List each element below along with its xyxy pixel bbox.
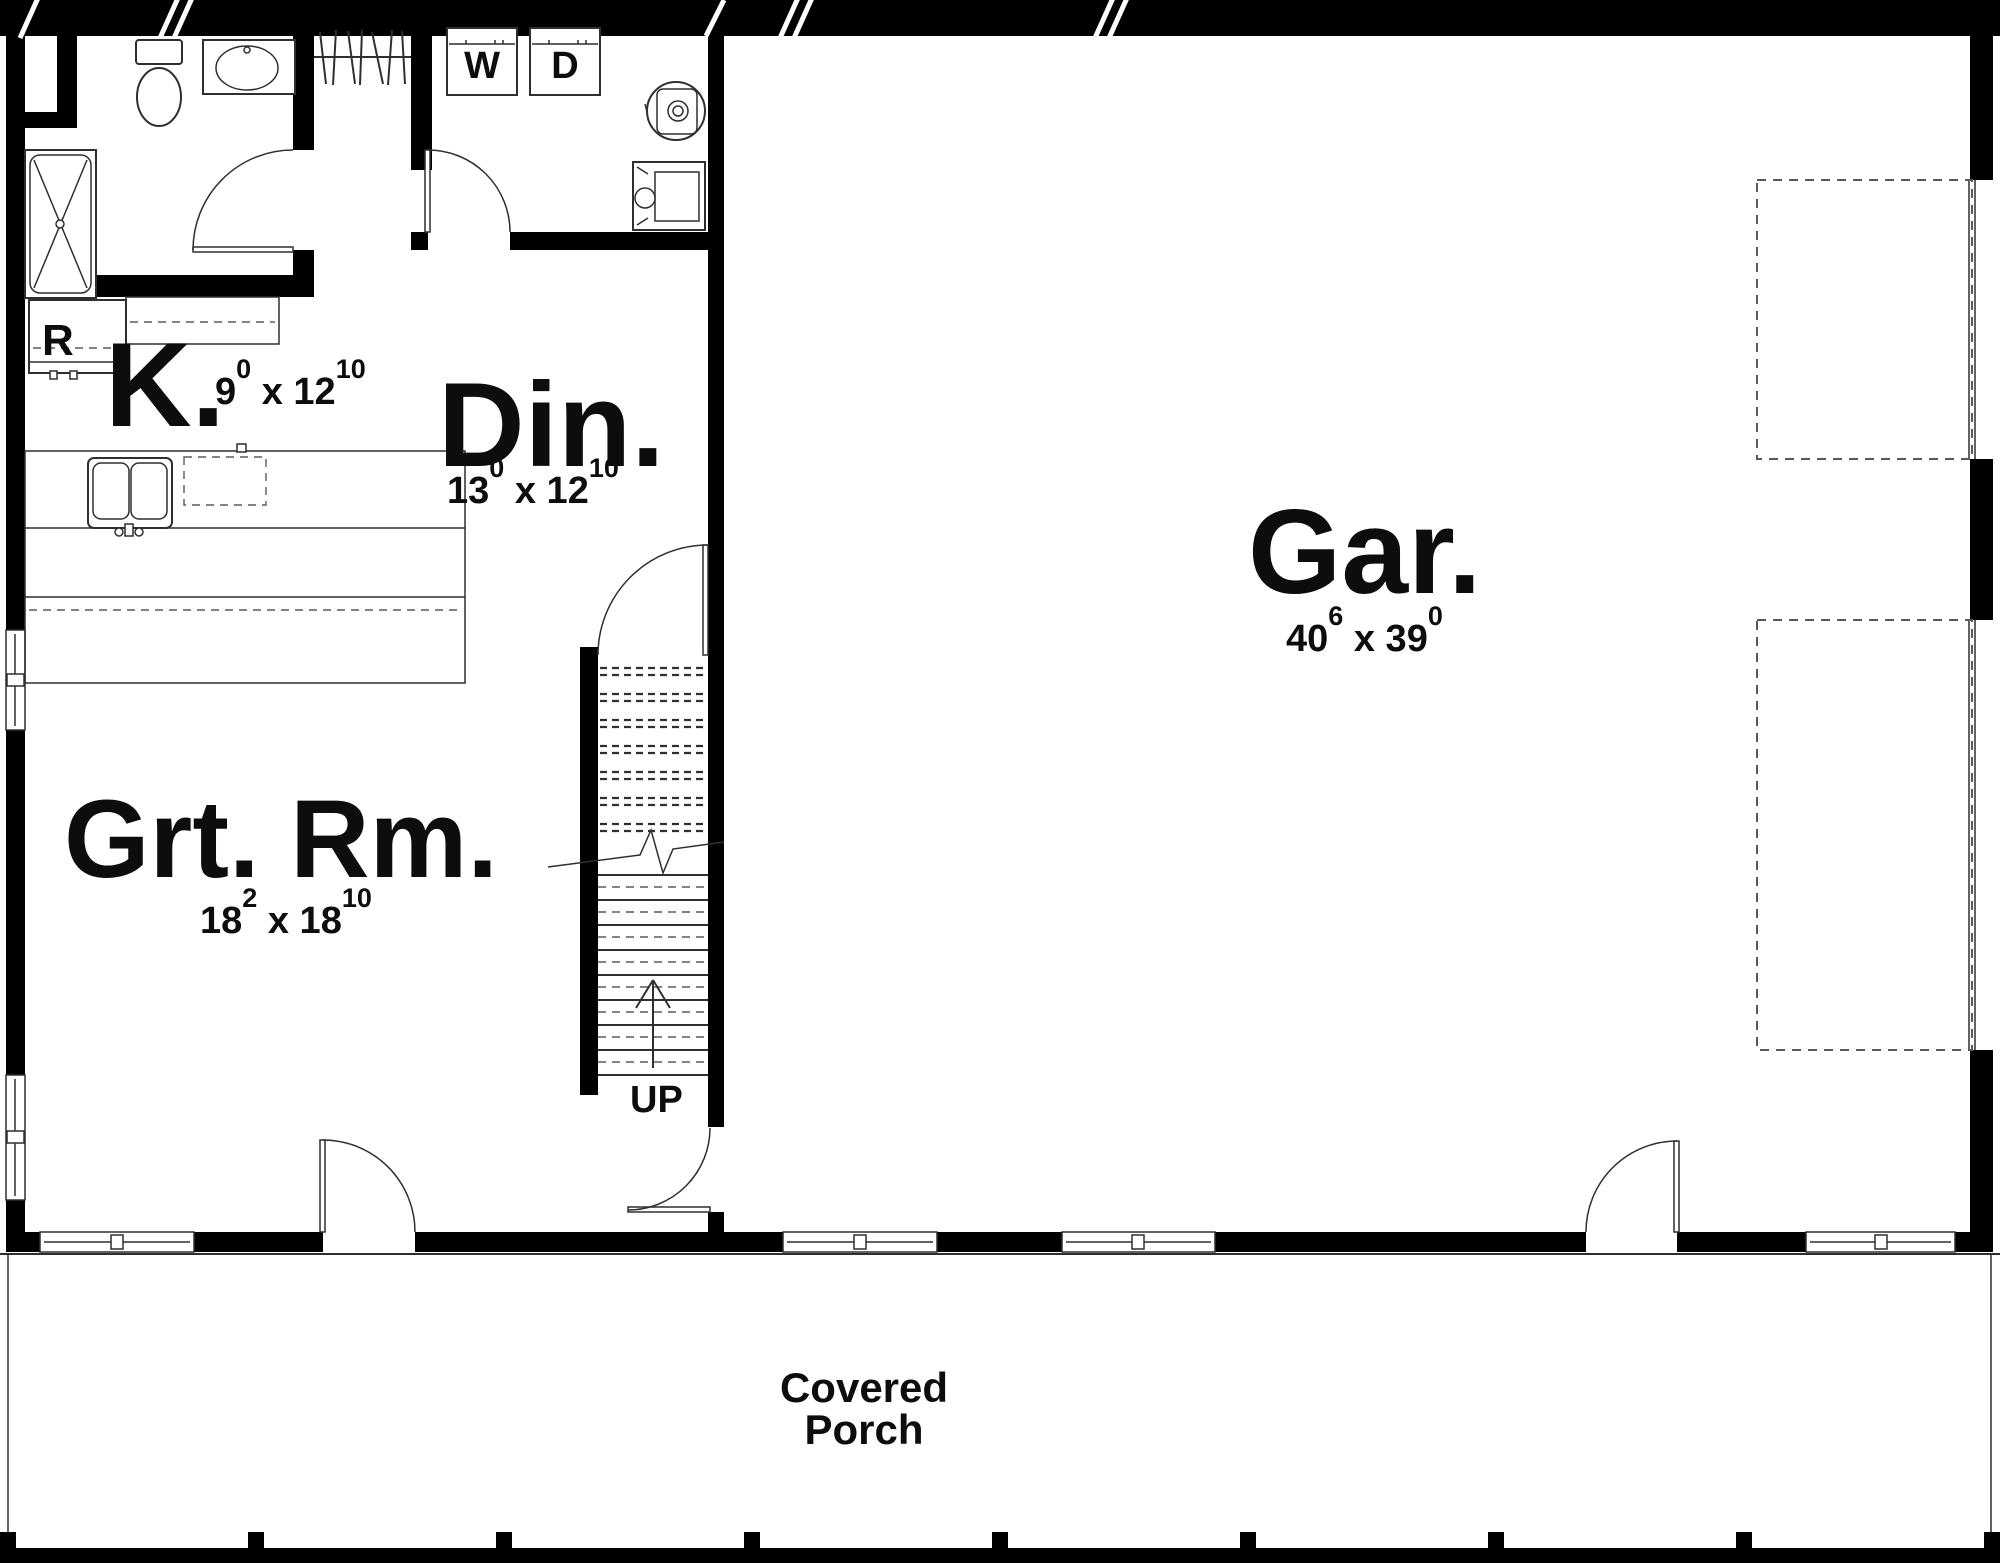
bottom-wall-seg (6, 1232, 40, 1252)
stair-treads-upper-dashed (600, 668, 706, 831)
front-window-1 (40, 1232, 194, 1252)
garage-overhead-doors (1757, 180, 1977, 1050)
left-window-1 (6, 630, 25, 730)
laundry-wall-stub (411, 232, 428, 250)
laundry-bottom-wall (510, 232, 708, 250)
bottom-wall-seg (1955, 1232, 1993, 1252)
left-wall-upper (6, 36, 25, 630)
left-window-2 (6, 1075, 25, 1200)
porch-label-line2: Porch (804, 1406, 923, 1453)
garage-door-dashed-outline (1757, 620, 1972, 1050)
kitchen-sink-icon (88, 458, 172, 536)
stair-break-line (548, 830, 724, 873)
kitchen-label: K. (105, 318, 225, 452)
front-window-3 (1062, 1232, 1215, 1252)
room-labels: K. 90 x 1210 Din. 130 x 1210 Grt. Rm. 18… (64, 318, 1482, 942)
garage-door-opening-1 (1757, 180, 1977, 459)
front-window-4 (1806, 1232, 1955, 1252)
left-wall-middle (6, 730, 25, 1075)
closet-rod-hangers-icon (314, 30, 411, 85)
bath-closet-bottom-wall (25, 112, 77, 128)
front-window-2 (783, 1232, 937, 1252)
stairs (548, 668, 724, 1075)
garage-label: Gar. (1248, 485, 1482, 619)
sink-vanity-icon (203, 40, 295, 94)
right-wall-upper (1970, 36, 1993, 180)
kitchen-peninsula-counter (25, 444, 465, 683)
bottom-wall-seg (1215, 1232, 1586, 1252)
floor-plan-svg: K. 90 x 1210 Din. 130 x 1210 Grt. Rm. 18… (0, 0, 2000, 1563)
bathroom-fixtures (25, 30, 411, 298)
bottom-wall-seg (194, 1232, 323, 1252)
furnace-icon (633, 162, 705, 230)
kitchen-dimensions: 90 x 1210 (215, 354, 366, 413)
porch-posts (0, 1532, 2000, 1548)
exterior-walls (0, 0, 2000, 1252)
bottom-wall-seg (415, 1232, 783, 1252)
laundry-door (425, 150, 510, 232)
great-room-label: Grt. Rm. (64, 778, 498, 901)
right-wall-lower (1970, 1050, 1993, 1252)
bottom-wall-seg (1677, 1232, 1806, 1252)
top-wall (0, 0, 2000, 36)
interior-walls (6, 36, 724, 1232)
toilet-icon (136, 40, 182, 126)
bathroom-wall-upper (293, 36, 314, 150)
doors (193, 150, 1679, 1232)
covered-porch (0, 1254, 2000, 1563)
stairs-up-label: UP (630, 1079, 683, 1121)
garage-door-opening-2 (1757, 620, 1977, 1050)
great-room-porch-door (320, 1140, 415, 1232)
garage-divider-stub (708, 1212, 724, 1232)
washer-label: W (464, 45, 500, 87)
stair-side-wall (580, 647, 598, 1095)
floor-plan-page: K. 90 x 1210 Din. 130 x 1210 Grt. Rm. 18… (0, 0, 2000, 1563)
garage-entry-door (628, 1128, 710, 1212)
bottom-wall-seg (937, 1232, 1062, 1252)
refrigerator-label: R (42, 316, 74, 365)
dishwasher-icon (184, 457, 266, 505)
garage-divider-wall (708, 36, 724, 1127)
shower-icon (25, 150, 96, 298)
dryer-label: D (551, 45, 578, 87)
garage-door-dashed-outline (1757, 180, 1972, 459)
porch-front-rail (0, 1548, 2000, 1563)
stairs-top-door (598, 545, 708, 655)
porch-label-line1: Covered (780, 1364, 948, 1411)
garage-porch-door (1586, 1141, 1679, 1232)
water-heater-icon (645, 82, 705, 140)
right-wall-middle (1970, 459, 1993, 620)
bathroom-door (193, 150, 293, 252)
bath-closet-partition (57, 36, 77, 112)
